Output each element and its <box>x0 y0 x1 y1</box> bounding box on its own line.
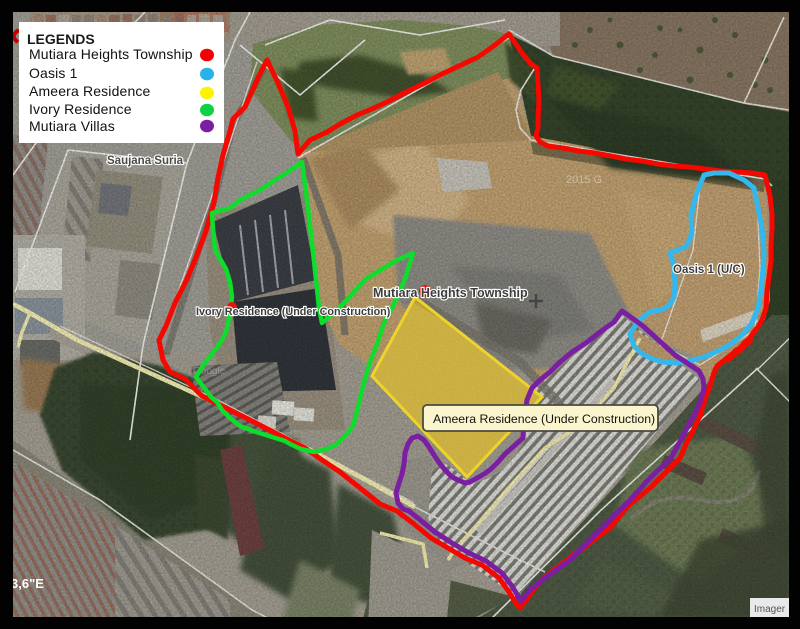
svg-text:Ivory Residence (Under Constru: Ivory Residence (Under Construction) <box>196 306 391 318</box>
svg-text:Ivory Residence: Ivory Residence <box>29 101 132 117</box>
svg-text:Ameera Residence: Ameera Residence <box>29 83 151 99</box>
svg-text:Mutiara Heights Township: Mutiara Heights Township <box>373 286 528 300</box>
svg-text:3,6"E: 3,6"E <box>11 576 44 591</box>
svg-text:Mutiara Heights Township: Mutiara Heights Township <box>29 46 193 62</box>
svg-text:Mutiara Villas: Mutiara Villas <box>29 118 115 134</box>
svg-text:Saujana Suria: Saujana Suria <box>107 155 184 167</box>
svg-text:Imager: Imager <box>754 604 786 615</box>
svg-text:2015 G: 2015 G <box>566 174 602 186</box>
svg-text:Oasis 1 (U/C): Oasis 1 (U/C) <box>673 264 745 276</box>
svg-text:LEGENDS: LEGENDS <box>27 31 95 47</box>
svg-text:Oasis 1: Oasis 1 <box>29 65 78 81</box>
svg-text:Ameera Residence (Under Constr: Ameera Residence (Under Construction) <box>433 412 655 426</box>
